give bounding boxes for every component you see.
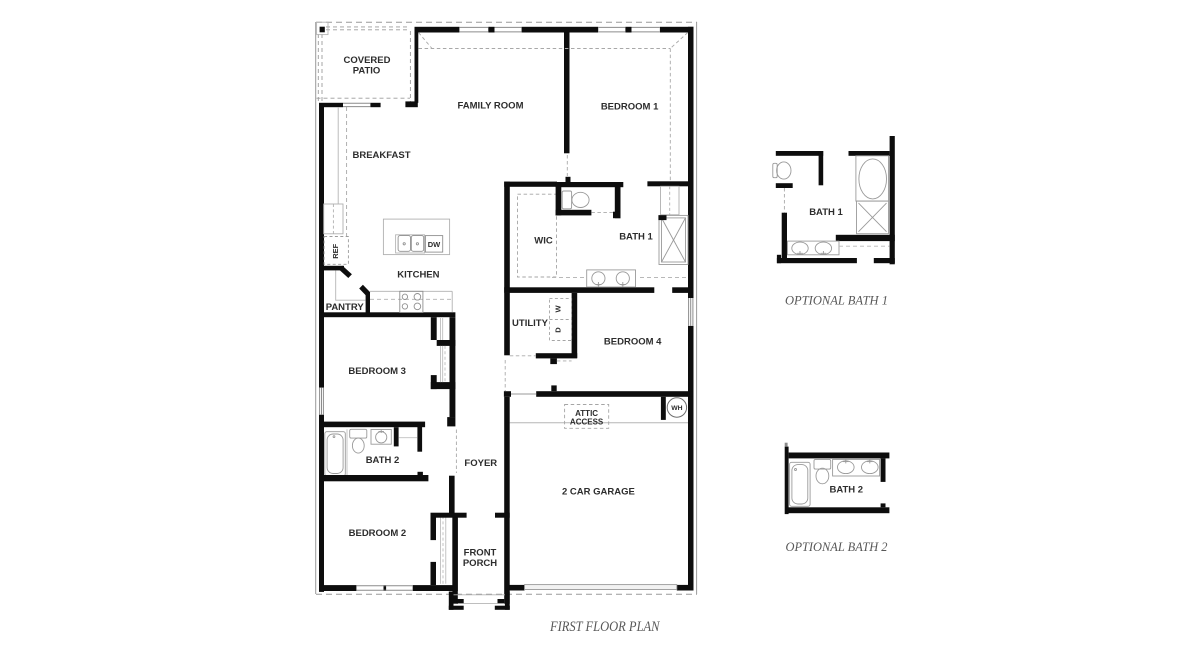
- svg-text:OPTIONAL BATH 1: OPTIONAL BATH 1: [785, 294, 888, 308]
- svg-text:BEDROOM 3: BEDROOM 3: [348, 366, 406, 377]
- svg-text:FRONT: FRONT: [464, 547, 497, 558]
- svg-text:BEDROOM 2: BEDROOM 2: [349, 528, 407, 539]
- svg-text:BATH 1: BATH 1: [809, 207, 843, 218]
- svg-text:DW: DW: [428, 240, 441, 249]
- svg-text:PANTRY: PANTRY: [326, 302, 365, 313]
- svg-text:ACCESS: ACCESS: [570, 417, 604, 426]
- svg-text:BREAKFAST: BREAKFAST: [352, 150, 410, 161]
- svg-text:COVERED: COVERED: [344, 55, 391, 66]
- svg-text:BEDROOM 4: BEDROOM 4: [604, 337, 662, 348]
- svg-text:PORCH: PORCH: [463, 558, 497, 569]
- svg-text:BEDROOM 1: BEDROOM 1: [601, 102, 659, 113]
- svg-text:2 CAR GARAGE: 2 CAR GARAGE: [562, 486, 635, 497]
- svg-text:FOYER: FOYER: [464, 458, 497, 469]
- svg-text:OPTIONAL BATH 2: OPTIONAL BATH 2: [786, 540, 888, 554]
- svg-text:KITCHEN: KITCHEN: [397, 270, 439, 281]
- svg-text:BATH 1: BATH 1: [619, 232, 653, 243]
- svg-text:PATIO: PATIO: [353, 66, 381, 77]
- svg-text:WIC: WIC: [534, 235, 553, 246]
- svg-text:W: W: [554, 305, 563, 313]
- svg-text:FAMILY ROOM: FAMILY ROOM: [458, 101, 524, 112]
- svg-text:BATH 2: BATH 2: [366, 455, 400, 466]
- svg-text:UTILITY: UTILITY: [512, 318, 549, 329]
- svg-text:WH: WH: [671, 405, 682, 412]
- svg-text:D: D: [554, 327, 563, 333]
- svg-text:REF: REF: [331, 243, 340, 258]
- svg-text:FIRST FLOOR PLAN: FIRST FLOOR PLAN: [549, 619, 660, 635]
- svg-text:BATH 2: BATH 2: [829, 485, 863, 496]
